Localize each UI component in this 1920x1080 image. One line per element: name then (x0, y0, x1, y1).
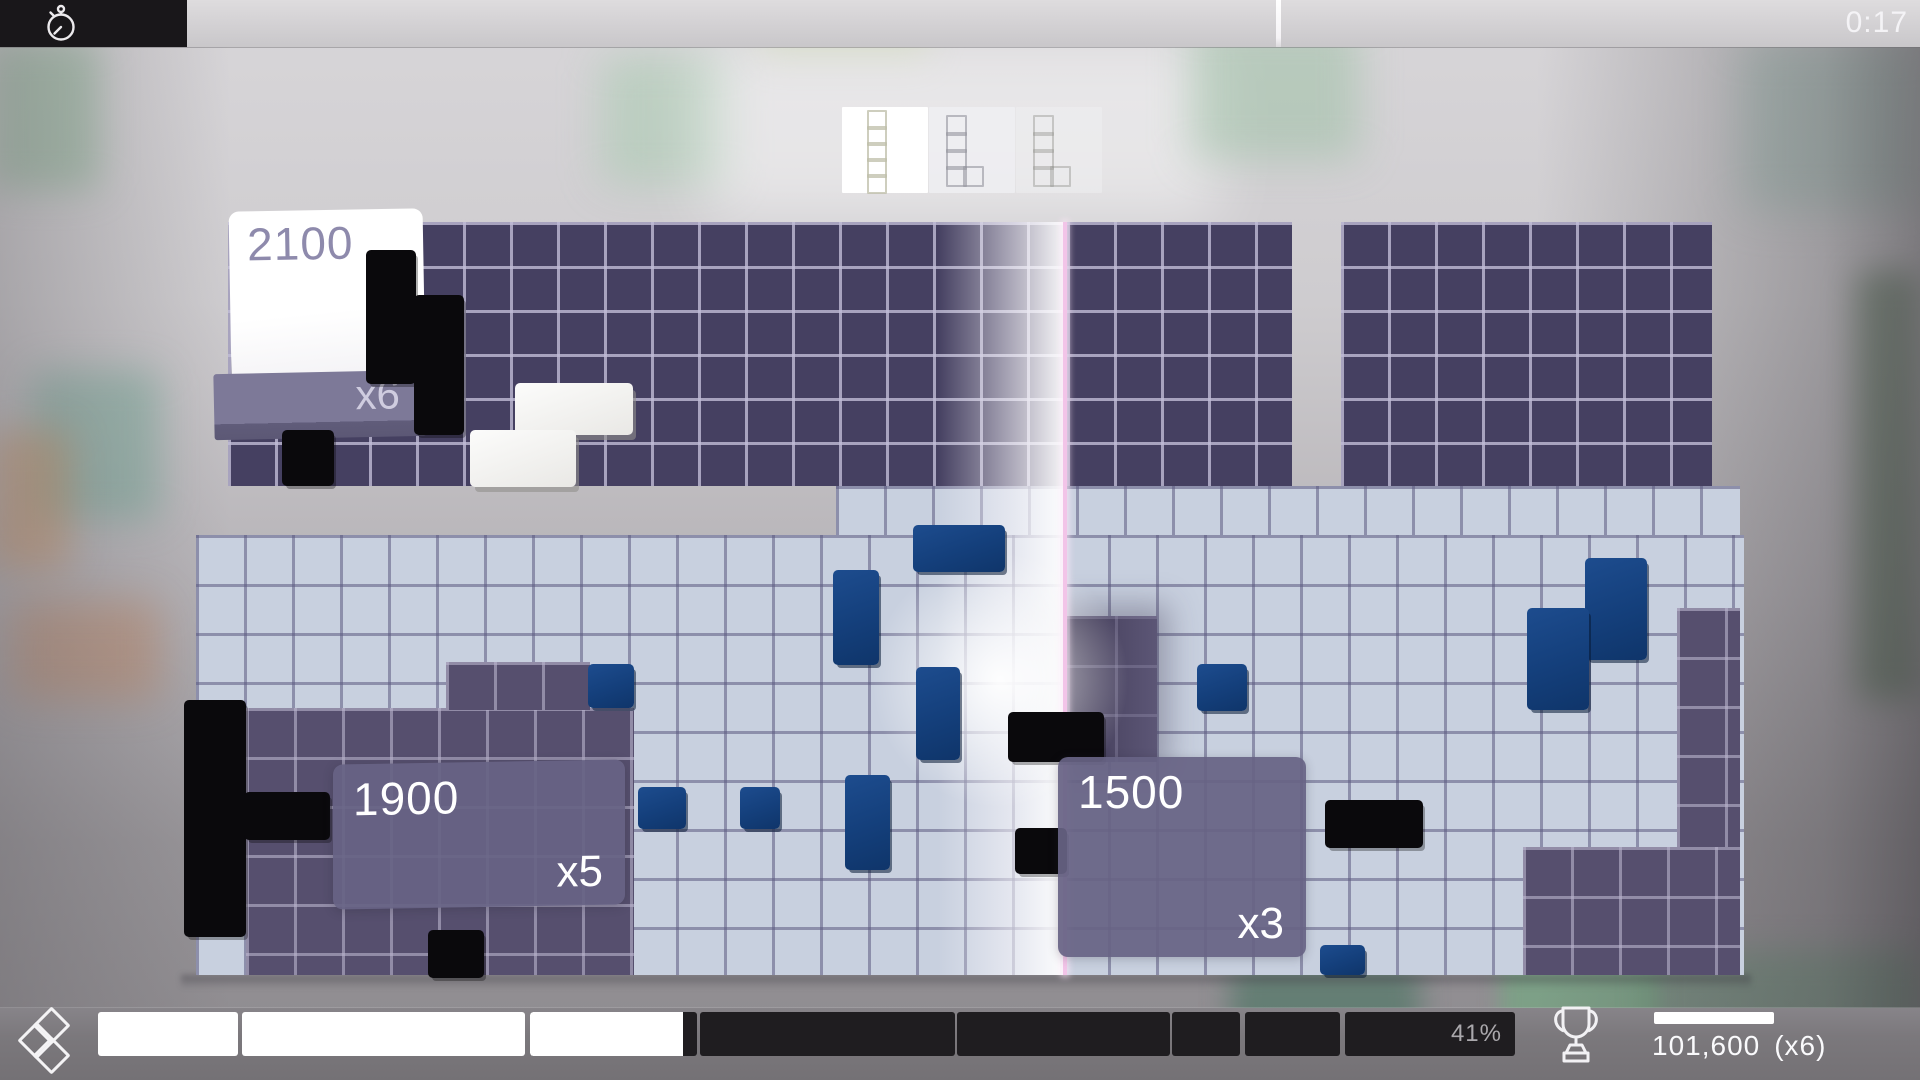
block-navy (1527, 608, 1589, 710)
progress-segment (242, 1012, 525, 1056)
popup-multiplier-value: x5 (557, 847, 603, 898)
progress-segment (1245, 1012, 1340, 1056)
popup-score-value: 1900 (353, 770, 459, 826)
block-black (244, 792, 330, 840)
block-navy (588, 664, 634, 708)
popup-score-value: 1500 (1078, 765, 1184, 819)
block-black (1325, 800, 1423, 848)
block-navy (916, 667, 960, 760)
popup-multiplier-value: x3 (1238, 899, 1284, 949)
block-navy (833, 570, 879, 665)
block-black (366, 250, 416, 384)
next-piece-box-3 (1016, 107, 1102, 193)
progress-segment-fill (530, 1012, 683, 1056)
score-multiplier: (x6) (1774, 1030, 1826, 1061)
progress-segment (1172, 1012, 1240, 1056)
score-popup-1500: 1500 x3 (1058, 757, 1306, 957)
block-navy (638, 787, 686, 829)
trophy-icon (1545, 1004, 1607, 1068)
progress-percent-label: 41% (1451, 1020, 1502, 1048)
block-white (470, 430, 576, 487)
field-region-top-section-right (1341, 222, 1712, 486)
block-black (1008, 712, 1104, 762)
progress-segment (98, 1012, 238, 1056)
progress-segment (700, 1012, 955, 1056)
block-black (428, 930, 484, 978)
stopwatch-icon (44, 4, 78, 44)
popup-score-value: 2100 (247, 216, 354, 272)
sweep-position-indicator (1276, 0, 1281, 47)
timer-mode-box (0, 0, 187, 47)
block-navy (1585, 558, 1647, 660)
score-value: 101,600 (1652, 1030, 1760, 1061)
piece-cell (1050, 166, 1071, 187)
field-region-purple-notch (446, 662, 590, 710)
block-black (414, 295, 464, 435)
progress-segment (530, 1012, 697, 1056)
block-black (184, 700, 246, 937)
score-popup-1900: 1900 x5 (333, 759, 625, 909)
block-navy (913, 525, 1005, 572)
block-black (282, 430, 334, 486)
progress-segment: 41% (1345, 1012, 1515, 1056)
block-navy (1197, 664, 1247, 711)
piece-cell (963, 166, 984, 187)
block-navy (845, 775, 890, 870)
game-screen: 2100 x6 1900 x5 1500 x3 0 (0, 0, 1920, 1080)
playfield-shadow (181, 975, 1751, 989)
score-display: 101,600(x6) (1652, 1030, 1826, 1062)
progress-segment (957, 1012, 1170, 1056)
next-piece-box-1 (842, 107, 928, 193)
next-piece-box-2 (929, 107, 1015, 193)
score-progress-bar (1654, 1012, 1774, 1024)
top-hud-strip: 0:17 (0, 0, 1920, 47)
blocks-mode-icon (21, 1012, 79, 1070)
block-navy (1320, 945, 1365, 975)
piece-cell (867, 174, 887, 194)
block-white (515, 383, 633, 435)
match-timer: 0:17 (1846, 6, 1908, 40)
field-region-purple-bottom-right (1523, 847, 1740, 975)
field-region-top-section-mid (1067, 222, 1292, 486)
block-navy (740, 787, 780, 829)
